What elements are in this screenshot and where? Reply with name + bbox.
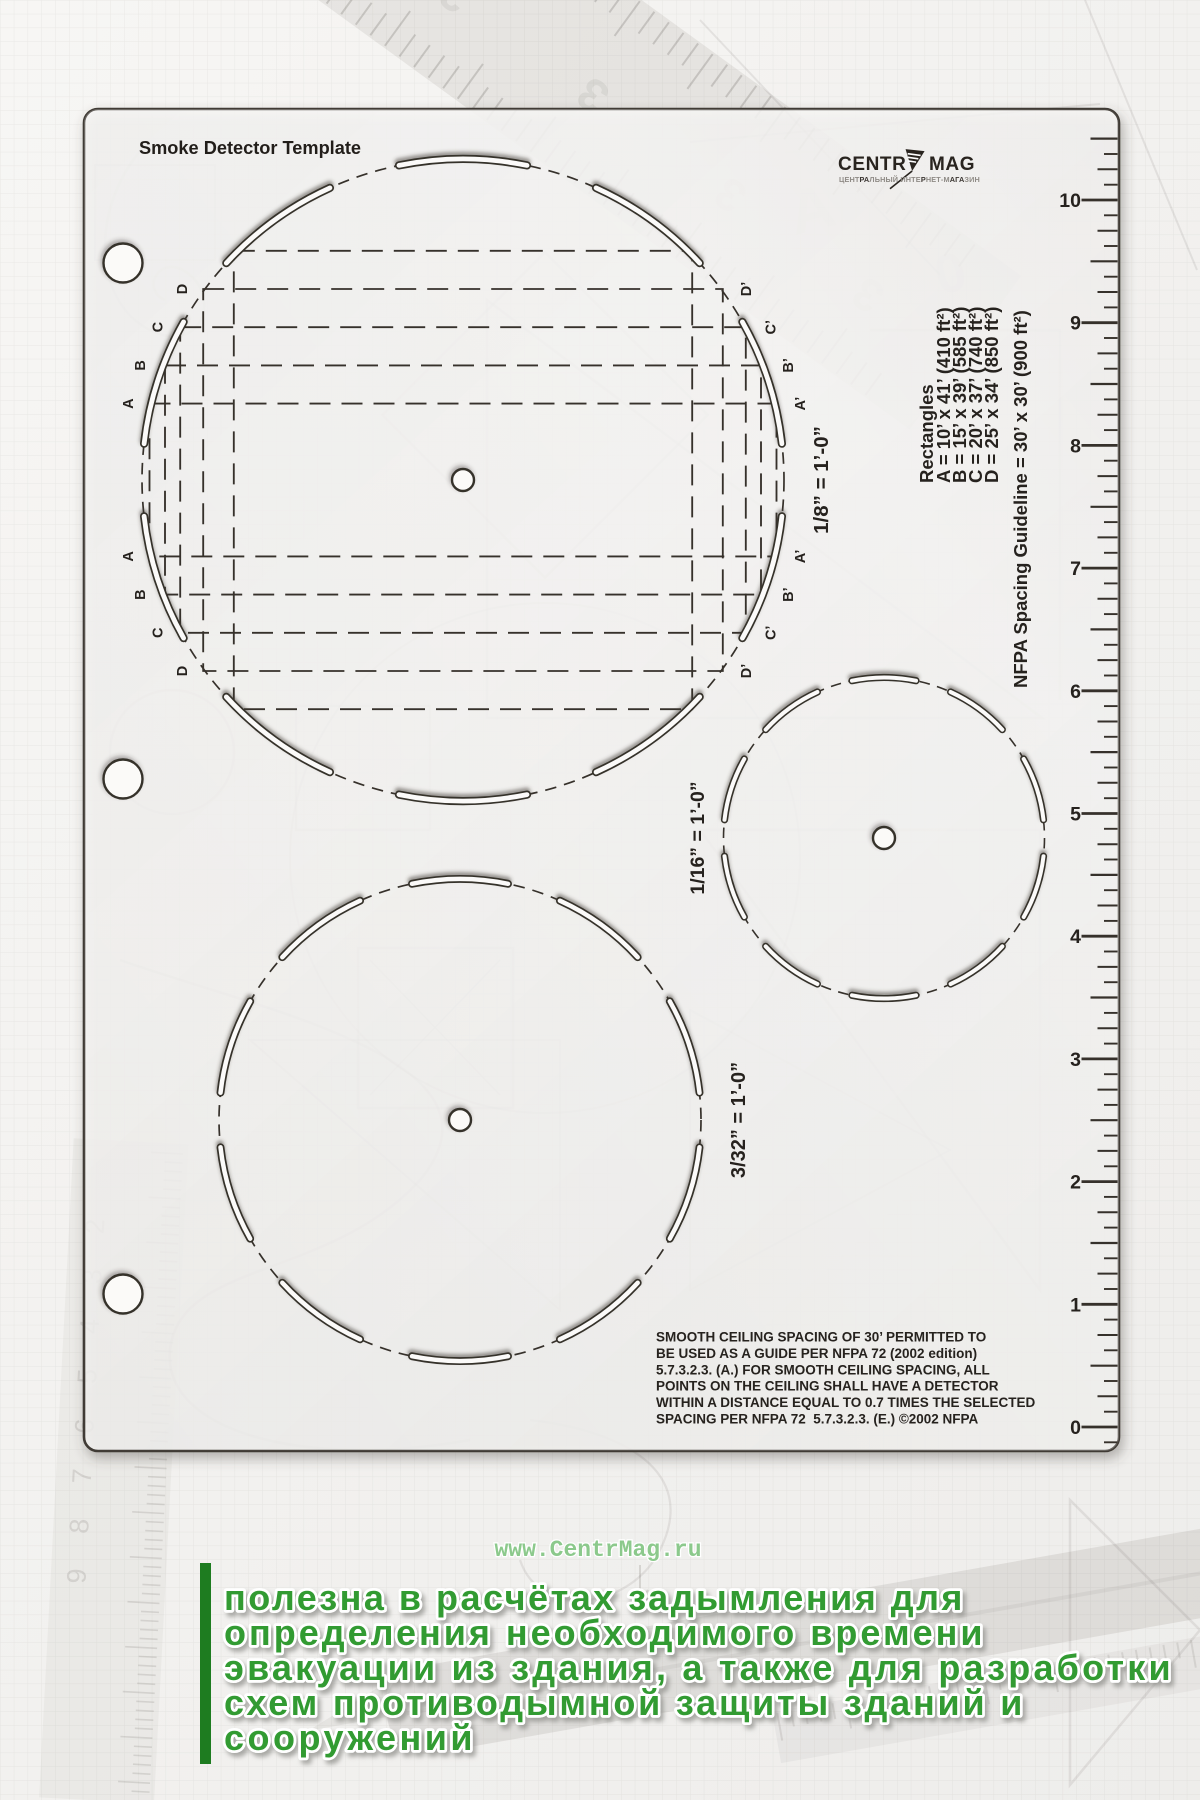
svg-text:5.7.3.2.3. (A.) FOR SMOOTH CEI: 5.7.3.2.3. (A.) FOR SMOOTH CEILING SPACI… (656, 1362, 990, 1377)
svg-text:D’: D’ (739, 664, 755, 679)
svg-text:www.CentrMag.ru: www.CentrMag.ru (494, 1537, 701, 1563)
svg-text:SMOOTH CEILING SPACING OF 30’: SMOOTH CEILING SPACING OF 30’ PERMITTED … (656, 1330, 986, 1345)
svg-text:ЦЕНТРАЛЬНЫЙ ИНТЕРНЕТ-МАГАЗИН: ЦЕНТРАЛЬНЫЙ ИНТЕРНЕТ-МАГАЗИН (839, 175, 980, 184)
svg-text:C: C (151, 627, 167, 638)
svg-text:POINTS ON THE CEILING SHALL HA: POINTS ON THE CEILING SHALL HAVE A DETEC… (656, 1379, 999, 1394)
svg-text:C’: C’ (763, 320, 779, 335)
svg-text:0: 0 (1070, 1417, 1081, 1439)
svg-text:B: B (133, 589, 149, 599)
svg-text:NFPA Spacing Guideline = 30’ x: NFPA Spacing Guideline = 30’ x 30’ (900 … (1010, 310, 1031, 688)
svg-text:A: A (121, 398, 137, 409)
svg-text:3/32” = 1’-0”: 3/32” = 1’-0” (728, 1062, 750, 1178)
svg-text:C’: C’ (763, 626, 779, 641)
svg-text:B’: B’ (781, 358, 797, 373)
svg-text:7: 7 (67, 1468, 98, 1485)
svg-text:D: D (175, 284, 191, 294)
svg-text:B’: B’ (781, 587, 797, 602)
svg-text:B: B (133, 360, 149, 370)
svg-text:D: D (175, 666, 191, 676)
svg-text:D’: D’ (739, 282, 755, 297)
svg-text:4: 4 (1070, 926, 1081, 948)
svg-text:A: A (121, 551, 137, 562)
svg-text:D = 25’ x 34’ (850 ft²): D = 25’ x 34’ (850 ft²) (981, 307, 1002, 483)
svg-text:7: 7 (1070, 558, 1081, 580)
svg-text:5: 5 (1070, 804, 1081, 826)
svg-text:8: 8 (1070, 435, 1081, 457)
svg-text:SPACING PER NFPA 72 5.7.3.2.3: SPACING PER NFPA 72 5.7.3.2.3. (E.) ©200… (656, 1412, 979, 1427)
svg-text:1/8” = 1’-0”: 1/8” = 1’-0” (810, 426, 833, 534)
svg-text:A’: A’ (793, 397, 809, 411)
svg-text:1: 1 (1070, 1294, 1081, 1316)
svg-text:9: 9 (1070, 313, 1081, 335)
svg-text:A’: A’ (793, 550, 809, 564)
svg-text:9: 9 (61, 1568, 92, 1585)
svg-text:1/16” = 1’-0”: 1/16” = 1’-0” (687, 781, 709, 894)
svg-text:MAG: MAG (929, 154, 975, 175)
svg-text:BE USED AS A GUIDE PER NFPA 72: BE USED AS A GUIDE PER NFPA 72 (2002 edi… (656, 1346, 977, 1361)
svg-text:C: C (151, 321, 167, 332)
svg-text:WITHIN A DISTANCE EQUAL TO 0.7: WITHIN A DISTANCE EQUAL TO 0.7 TIMES THE… (656, 1395, 1036, 1410)
svg-text:8: 8 (64, 1518, 95, 1535)
svg-text:6: 6 (1070, 681, 1081, 703)
svg-text:CENTR: CENTR (838, 154, 906, 175)
svg-text:2: 2 (1070, 1172, 1081, 1194)
svg-text:3: 3 (1070, 1049, 1081, 1071)
svg-text:10: 10 (1059, 190, 1081, 212)
svg-text:Smoke Detector Template: Smoke Detector Template (139, 138, 361, 158)
svg-text:сооружений: сооружений (224, 1717, 476, 1758)
